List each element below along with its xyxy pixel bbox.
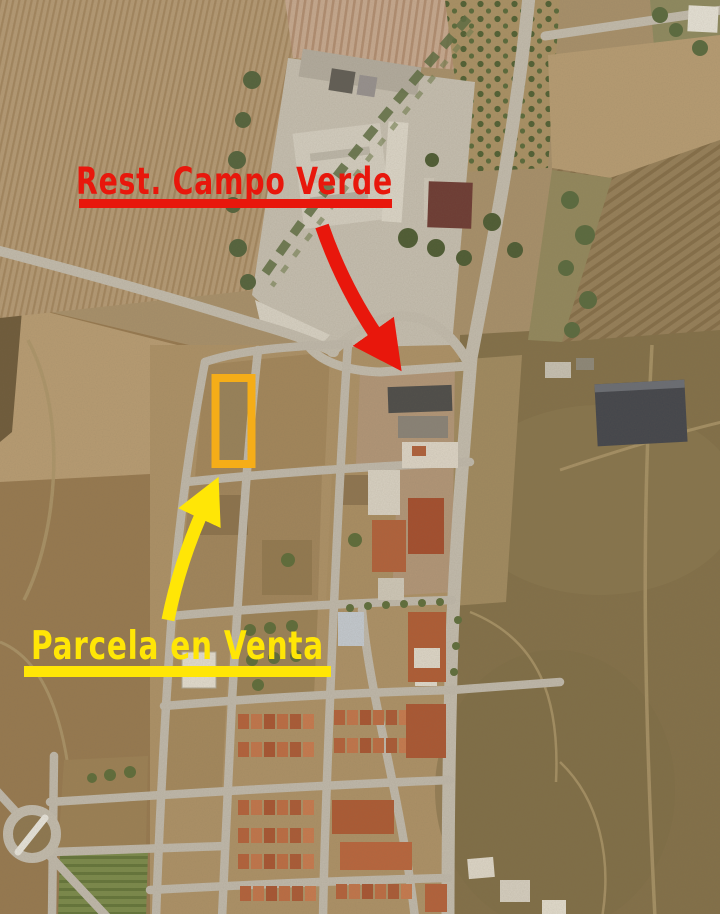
satellite-map: Rest. Campo Verde Parcela en Venta xyxy=(0,0,720,914)
photo-grain-overlay xyxy=(0,0,720,914)
parcel-underline xyxy=(24,666,331,677)
screenshot-root: Rest. Campo Verde Parcela en Venta xyxy=(0,0,720,914)
restaurant-label: Rest. Campo Verde xyxy=(76,160,393,203)
restaurant-underline xyxy=(79,199,392,208)
parcel-label: Parcela en Venta xyxy=(31,624,324,669)
